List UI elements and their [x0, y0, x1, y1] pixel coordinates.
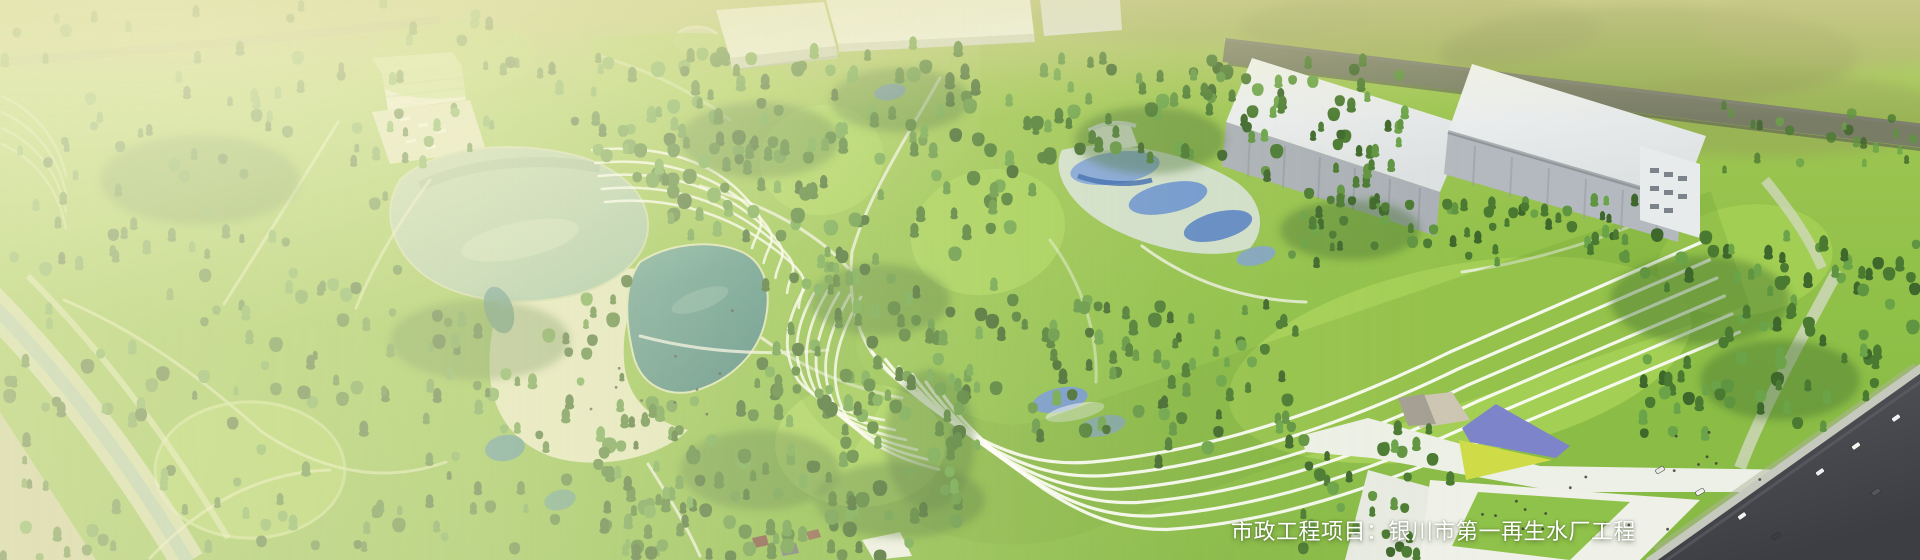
- aerial-rendering: [0, 0, 1920, 560]
- project-caption: 市政工程项目：银川市第一再生水厂工程: [1231, 520, 1636, 544]
- hero-banner: 市政工程项目：银川市第一再生水厂工程: [0, 0, 1920, 560]
- haze-overlay-top: [0, 0, 1920, 120]
